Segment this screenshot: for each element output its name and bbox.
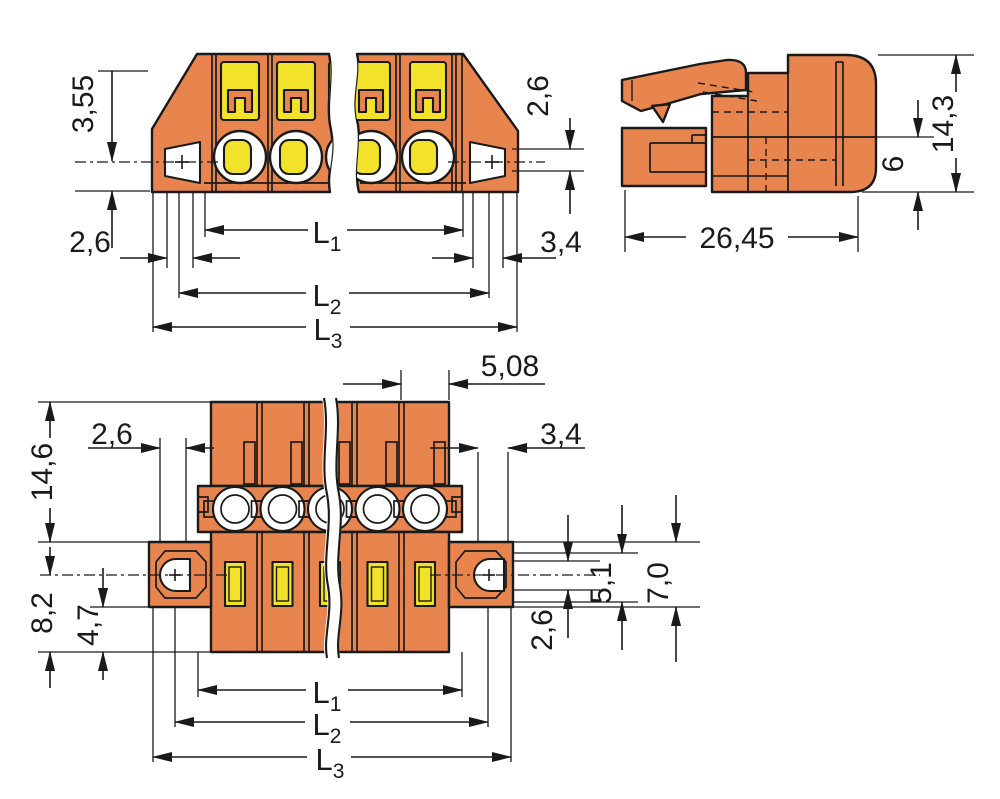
- dim-label-3-4-front: 3,4: [540, 226, 582, 259]
- l3-sub: 3: [331, 330, 343, 353]
- dim-label-2-6-bottom-right: 2,6: [526, 609, 559, 651]
- l3-base: L: [314, 312, 331, 347]
- l2-base: L: [313, 707, 330, 742]
- side-wire-entry-block: [622, 128, 706, 186]
- dim-label-14-3: 14,3: [927, 95, 960, 153]
- dim-label-7-0: 7,0: [642, 562, 675, 604]
- drawing-canvas: 3,55 2,6 2,6 3,4 L1 L2 L3: [0, 0, 1000, 799]
- dim-label-5-1: 5,1: [585, 562, 618, 604]
- dim-label-26-45: 26,45: [699, 222, 774, 255]
- l2-base: L: [313, 278, 330, 313]
- dim-label-5-08: 5,08: [481, 350, 539, 383]
- dim-label-2-6-front-left: 2,6: [69, 226, 111, 259]
- connector-technical-drawing: 3,55 2,6 2,6 3,4 L1 L2 L3: [0, 0, 1000, 799]
- l1-sub: 1: [330, 233, 342, 256]
- l3-sub: 3: [333, 760, 345, 783]
- l1-base: L: [313, 215, 330, 250]
- dim-label-3-4-bottom: 3,4: [540, 418, 582, 451]
- l1-base: L: [313, 675, 330, 710]
- l3-base: L: [316, 742, 333, 777]
- dim-label-4-7: 4,7: [72, 604, 105, 646]
- dim-label-2-6-front-right: 2,6: [522, 75, 555, 117]
- dim-label-3-55: 3,55: [67, 75, 100, 133]
- dim-label-8-2: 8,2: [26, 592, 59, 634]
- dim-label-6: 6: [877, 156, 910, 173]
- dim-label-2-6-bottom-top-left: 2,6: [91, 418, 133, 451]
- l1-sub: 1: [330, 693, 342, 716]
- dim-label-14-6: 14,6: [26, 443, 59, 501]
- l2-sub: 2: [330, 296, 342, 319]
